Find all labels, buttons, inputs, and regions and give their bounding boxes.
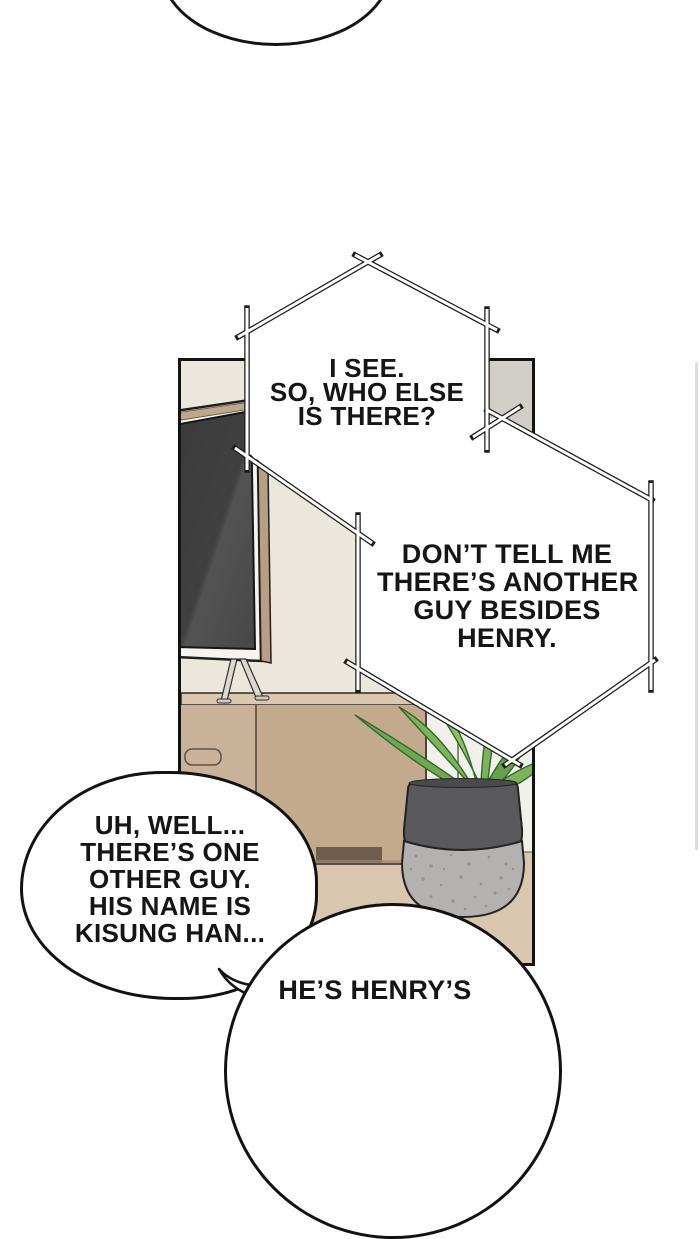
dialogue-oval: UH, WELL... THERE’S ONE OTHER GUY. HIS N…	[45, 812, 295, 947]
dialogue-line: HENRY.	[377, 624, 637, 652]
webtoon-page: { "comic": { "bubbles": { "hex1": { "lin…	[0, 0, 700, 1000]
hex-speech-bubbles	[170, 240, 700, 800]
dialogue-line: UH, WELL...	[45, 812, 295, 839]
hex-bubble-fill	[245, 262, 651, 760]
speech-bubble-bottom-partial	[224, 903, 562, 1239]
dialogue-hex1: I SEE. SO, WHO ELSE IS THERE?	[257, 356, 477, 428]
dialogue-line: IS THERE?	[257, 404, 477, 428]
dialogue-line: OTHER GUY.	[45, 866, 295, 893]
speech-bubble-top-partial	[160, 0, 392, 46]
dialogue-hex2: DON’T TELL ME THERE’S ANOTHER GUY BESIDE…	[377, 540, 637, 652]
dialogue-line: THERE’S ANOTHER	[377, 568, 637, 596]
dialogue-line: DON’T TELL ME	[377, 540, 637, 568]
dialogue-line: HIS NAME IS	[45, 893, 295, 920]
dialogue-line: KISUNG HAN...	[45, 920, 295, 947]
dialogue-line: THERE’S ONE	[45, 839, 295, 866]
dialogue-line: GUY BESIDES	[377, 596, 637, 624]
